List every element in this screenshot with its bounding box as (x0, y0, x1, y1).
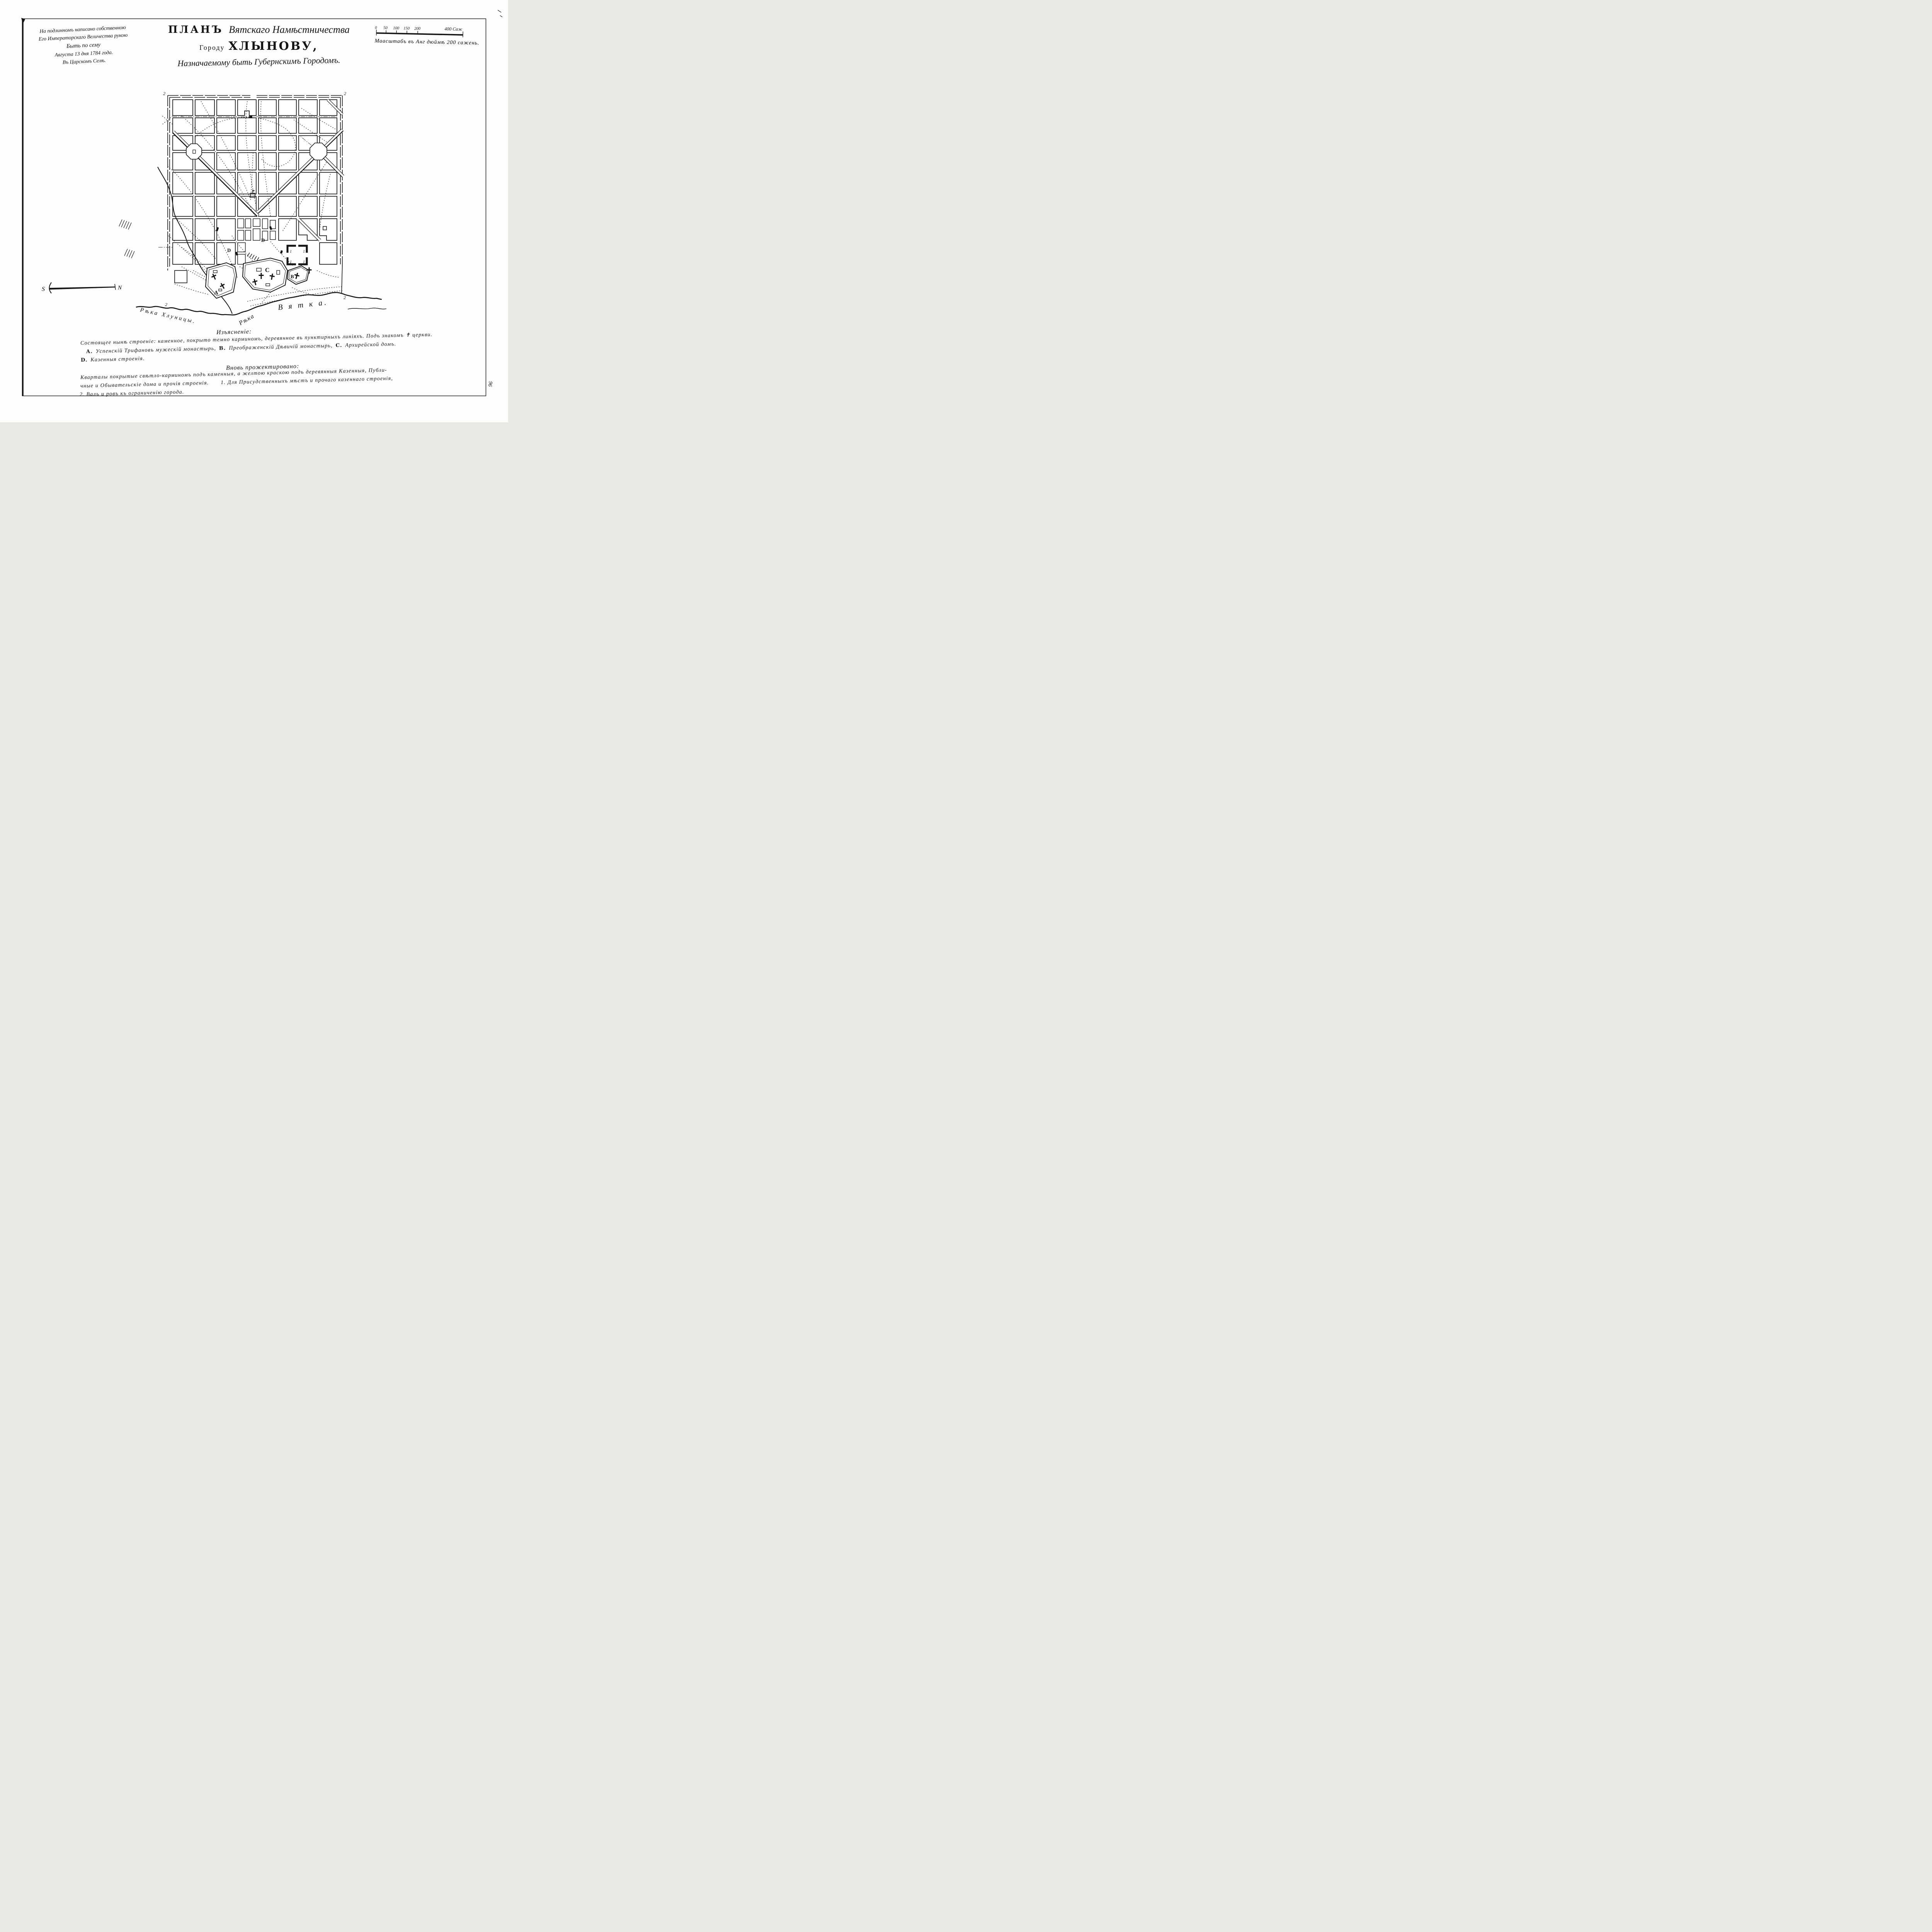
label-gov-1b: 1 (303, 250, 305, 254)
river-vyatka-label: В я т к а. (277, 298, 328, 312)
label-state-building-d: D (227, 247, 231, 253)
scale-tick-200: 200 (414, 27, 421, 31)
scale-tick-150: 150 (403, 26, 410, 31)
label-gov-1c: 1 (290, 260, 292, 264)
scale-bar: 0 50 100 150 200 400 Саж Маасштабъ въ Ан… (374, 25, 480, 46)
compass: S N (42, 282, 122, 293)
city-plan-drawing: 0 50 100 150 200 400 Саж Маасштабъ въ Ан… (0, 0, 508, 422)
scale-tick-0: 0 (375, 26, 377, 30)
label-state-building-d2: D (261, 237, 265, 243)
label-monastery-b: B (291, 274, 294, 279)
margin-mark: 96 (487, 381, 493, 387)
rampart-label-nw: 2 (163, 91, 165, 96)
label-gov-1a: 1 (290, 250, 292, 254)
rampart-label-se: 2 (344, 295, 346, 300)
rampart-label-sw: 2 (165, 302, 167, 307)
river-vyatka-prefix: Рѣка (238, 313, 256, 327)
scale-tick-50: 50 (383, 26, 388, 30)
label-bishop-house-c: C (265, 267, 270, 274)
scale-tick-100: 100 (393, 26, 400, 31)
scale-end-label: 400 Саж (444, 26, 463, 32)
label-gov-1d: 1 (303, 260, 305, 264)
label-monastery-a: A (214, 290, 218, 296)
map-sheet: На подлинномъ написано собственною Его И… (0, 0, 508, 422)
scale-caption: Маасштабъ въ Анг дюймѣ 200 сажень. (374, 38, 479, 46)
compass-north-label: N (117, 285, 122, 291)
compass-south-label: S (42, 286, 45, 293)
city-grid (173, 100, 337, 283)
rampart-label-ne: 2 (344, 91, 346, 96)
